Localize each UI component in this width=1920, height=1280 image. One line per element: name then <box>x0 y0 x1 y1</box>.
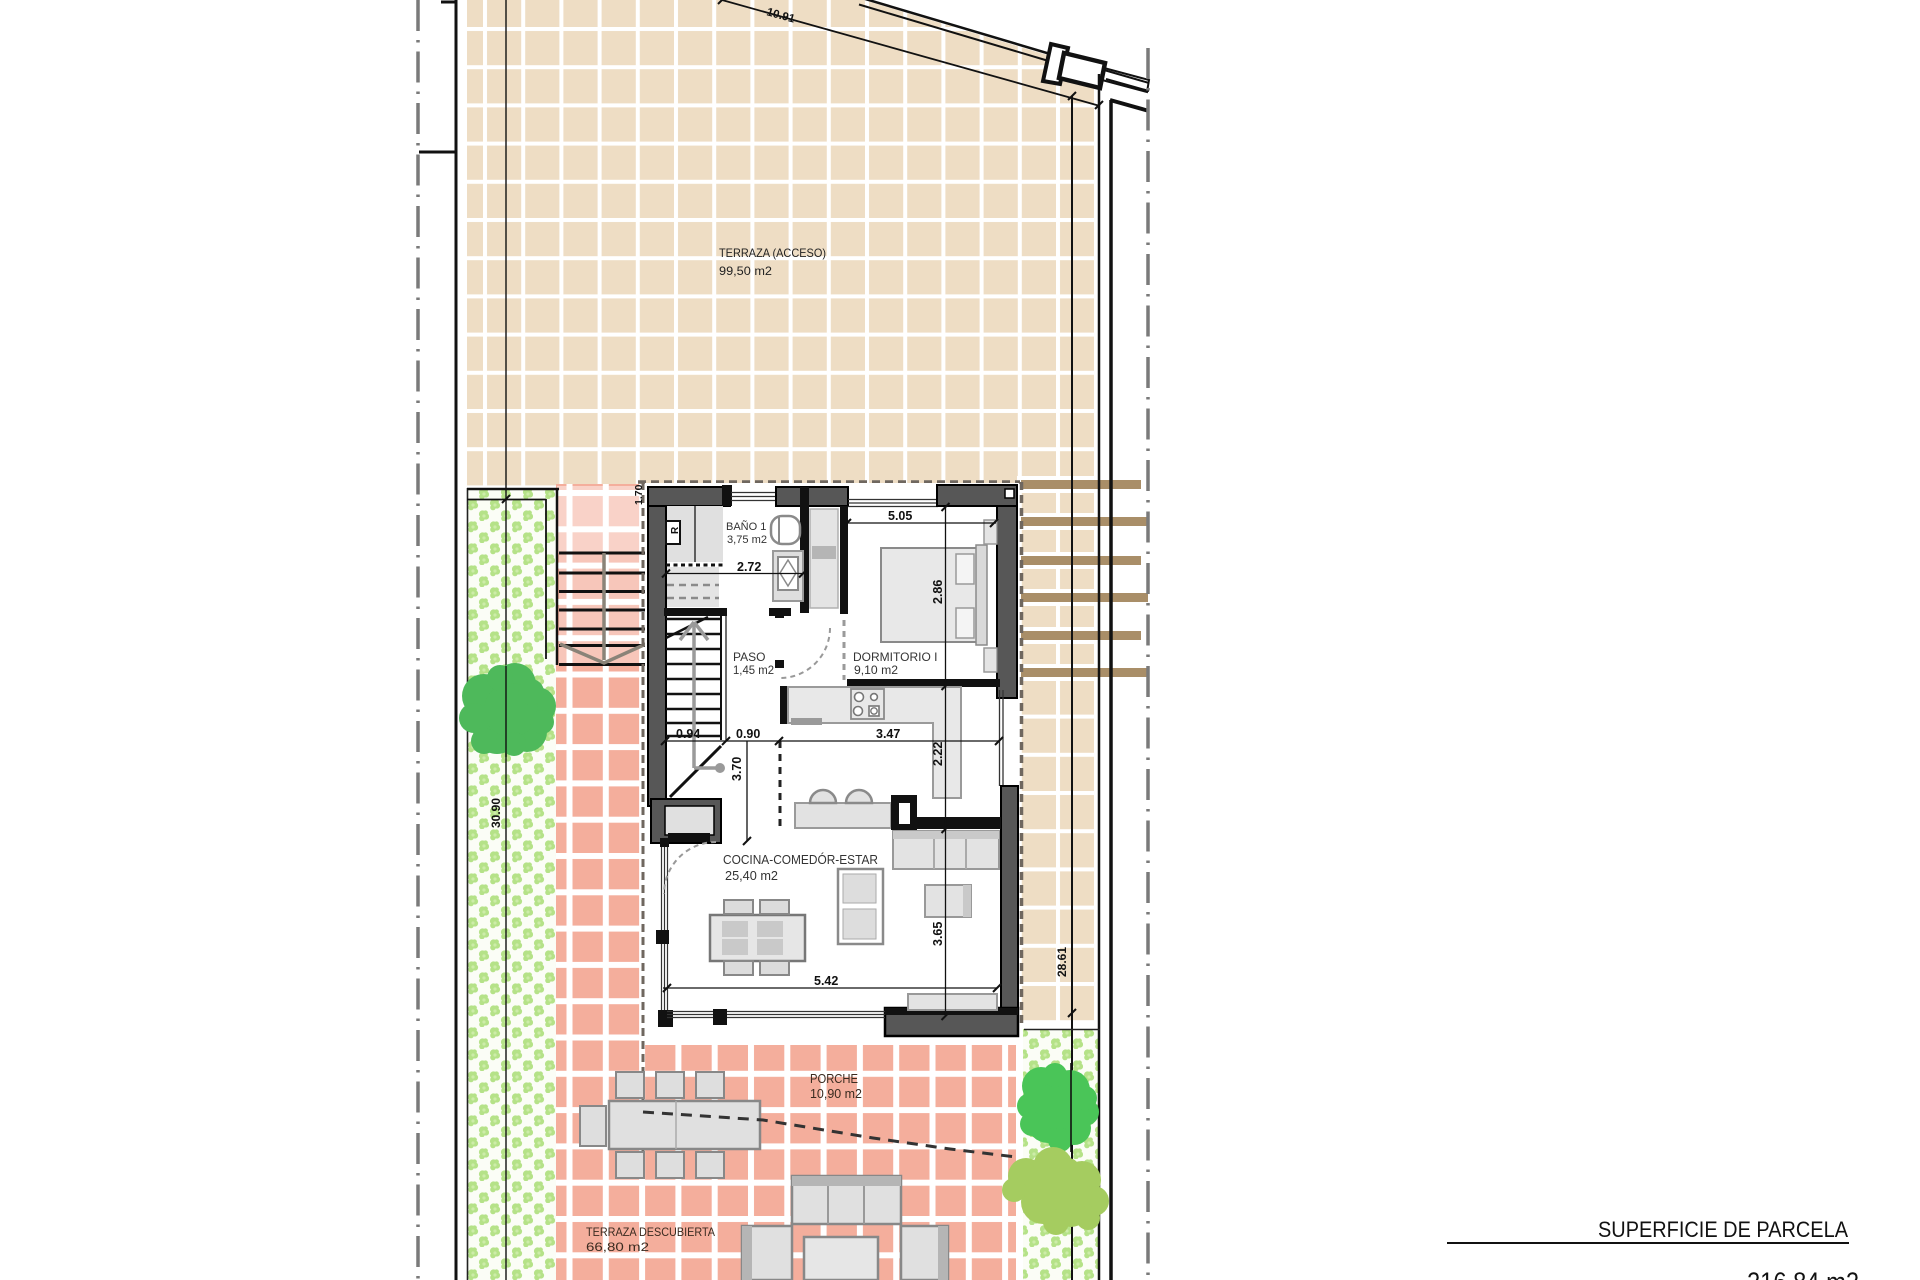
svg-text:3,75 m2: 3,75 m2 <box>727 534 767 546</box>
svg-text:2.72: 2.72 <box>737 560 761 574</box>
svg-text:DORMITORIO I: DORMITORIO I <box>853 650 937 664</box>
svg-text:5.05: 5.05 <box>888 509 912 523</box>
svg-text:2.86: 2.86 <box>931 580 945 604</box>
svg-text:PORCHE: PORCHE <box>810 1072 858 1086</box>
svg-text:216,84 m2: 216,84 m2 <box>1747 1267 1859 1280</box>
svg-text:0.90: 0.90 <box>736 727 760 741</box>
svg-text:28.61: 28.61 <box>1055 947 1069 977</box>
svg-text:25,40 m2: 25,40 m2 <box>725 868 778 883</box>
svg-text:5.42: 5.42 <box>814 974 838 988</box>
svg-text:BAÑO 1: BAÑO 1 <box>726 520 766 533</box>
svg-text:66,80 m2: 66,80 m2 <box>586 1240 649 1254</box>
svg-text:9,10 m2: 9,10 m2 <box>854 663 898 677</box>
svg-text:0.94: 0.94 <box>676 727 700 741</box>
svg-text:TERRAZA (ACCESO): TERRAZA (ACCESO) <box>719 246 826 260</box>
svg-text:30.90: 30.90 <box>489 798 503 828</box>
svg-text:10,90 m2: 10,90 m2 <box>810 1087 862 1101</box>
svg-text:3.65: 3.65 <box>931 922 945 946</box>
svg-text:99,50 m2: 99,50 m2 <box>719 264 772 278</box>
svg-text:3.70: 3.70 <box>730 757 744 781</box>
svg-text:PASO: PASO <box>733 650 765 664</box>
svg-text:TERRAZA DESCUBIERTA: TERRAZA DESCUBIERTA <box>586 1225 715 1239</box>
svg-text:COCINA-COMEDÓR-ESTAR: COCINA-COMEDÓR-ESTAR <box>723 852 878 867</box>
svg-text:1.70: 1.70 <box>633 484 645 505</box>
svg-text:SUPERFICIE DE PARCELA: SUPERFICIE DE PARCELA <box>1598 1217 1848 1242</box>
svg-text:3.47: 3.47 <box>876 727 900 741</box>
svg-text:R: R <box>670 526 681 534</box>
svg-text:2.22: 2.22 <box>931 742 945 766</box>
svg-text:1,45 m2: 1,45 m2 <box>733 663 774 677</box>
